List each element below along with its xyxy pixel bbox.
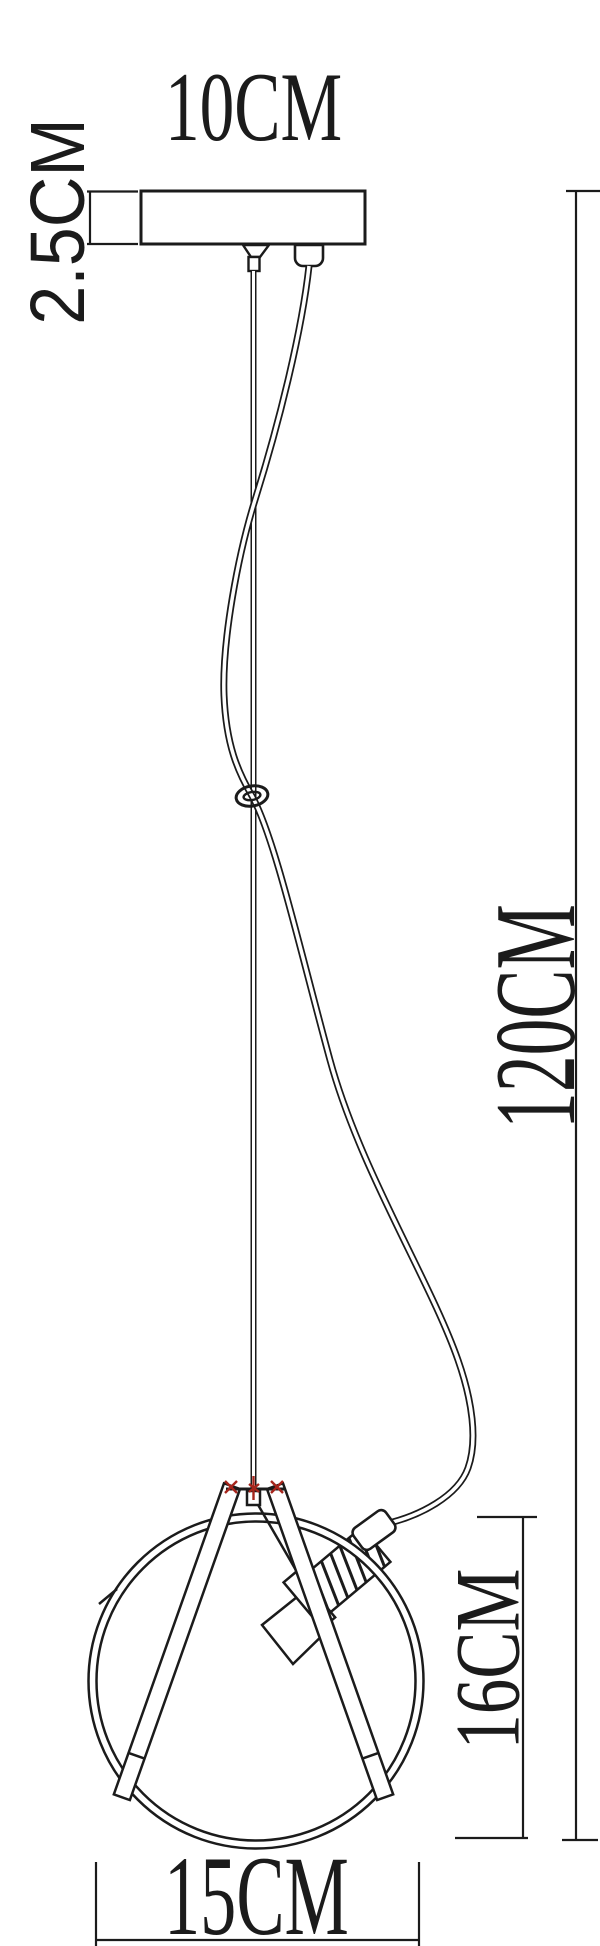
lamp-diameter-text: 15CM: [164, 1840, 349, 1946]
lamp-height-text: 16CM: [442, 1568, 534, 1749]
canopy-height-text: 2.5CM: [20, 118, 97, 324]
lamp-frame-ring: [89, 1514, 424, 1849]
diagram-canvas: 10CM 2.5CM 120CM 16CM 15CM: [0, 0, 600, 1946]
canopy-width-text: 10CM: [165, 58, 342, 157]
power-cord: [224, 266, 473, 1524]
support-arm-left: [114, 1483, 240, 1800]
ceiling-canopy: [141, 191, 365, 244]
cord-gland: [295, 245, 323, 266]
strain-relief-cone: [243, 245, 269, 271]
suspension-length-text: 120CM: [479, 904, 594, 1129]
